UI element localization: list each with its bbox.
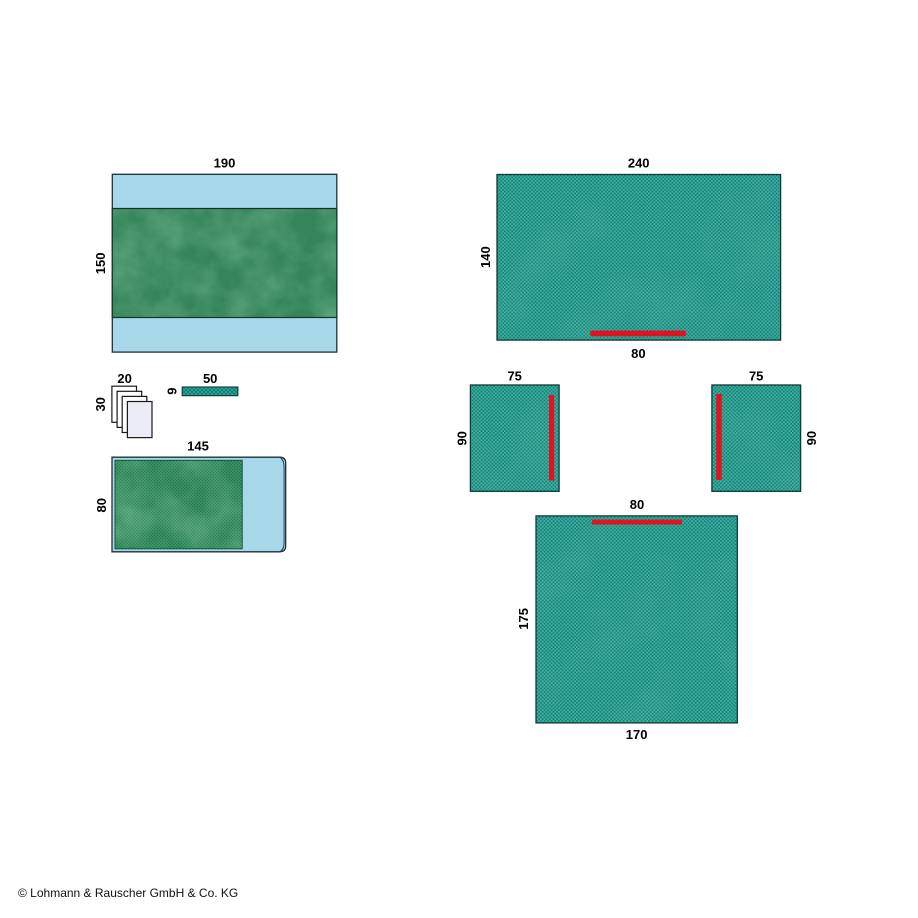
svg-text:80: 80	[631, 346, 645, 361]
svg-text:140: 140	[478, 246, 493, 268]
svg-text:9: 9	[165, 387, 180, 394]
svg-text:75: 75	[507, 368, 521, 383]
svg-text:75: 75	[749, 368, 763, 383]
svg-text:30: 30	[93, 397, 108, 411]
svg-text:© Lohmann & Rauscher GmbH & Co: © Lohmann & Rauscher GmbH & Co. KG	[18, 886, 238, 900]
svg-text:145: 145	[187, 439, 209, 454]
svg-text:80: 80	[94, 498, 109, 512]
svg-text:240: 240	[628, 156, 650, 171]
svg-text:80: 80	[630, 497, 644, 512]
svg-text:90: 90	[804, 431, 819, 445]
svg-text:170: 170	[626, 727, 648, 742]
svg-text:190: 190	[214, 156, 236, 171]
svg-text:175: 175	[516, 608, 531, 630]
svg-text:150: 150	[93, 253, 108, 275]
svg-text:20: 20	[117, 371, 131, 386]
svg-text:90: 90	[455, 431, 470, 445]
svg-text:50: 50	[203, 371, 217, 386]
